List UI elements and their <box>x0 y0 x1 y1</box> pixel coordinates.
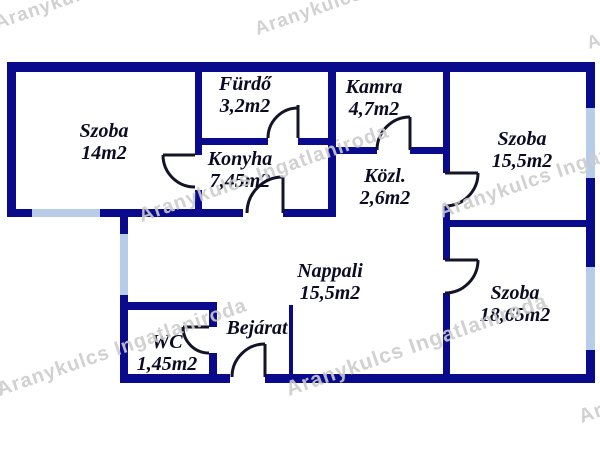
watermark: Aranykulcs Ingatlaniroda <box>283 289 551 401</box>
room-area: 2,6m2 <box>360 187 411 209</box>
door-furdo <box>268 105 298 138</box>
room-area: 4,7m2 <box>346 98 403 120</box>
room-name: Fürdő <box>219 73 271 95</box>
door-arc <box>268 108 298 138</box>
wall-top <box>7 62 593 72</box>
watermark: Aranykulcs Ingatlaniroda <box>0 0 237 35</box>
room-name: Kamra <box>346 76 403 98</box>
window-szoba14-bottom <box>32 209 100 217</box>
room-label-kamra: Kamra 4,7m2 <box>346 76 403 120</box>
window-right-lower <box>586 267 595 350</box>
wall-szoba14-right-a <box>195 62 202 155</box>
window-left-lower <box>120 234 128 295</box>
wall-szoba-divider <box>450 220 595 227</box>
wall-wc-right-b <box>209 353 217 377</box>
door-szoba14 <box>163 155 195 187</box>
door-szoba18 <box>445 260 478 293</box>
door-bejarat <box>232 344 265 377</box>
room-label-furdo: Fürdő 3,2m2 <box>219 73 271 117</box>
room-name: Szoba <box>80 120 129 142</box>
door-arc <box>163 155 195 187</box>
watermark: Aranykulcs Ingatlaniroda <box>136 120 392 227</box>
room-label-nappali: Nappali 15,5m2 <box>297 260 363 304</box>
room-name: Közl. <box>360 165 411 187</box>
watermark: Aranykulcs Ingatlaniroda <box>584 0 600 54</box>
room-name: Nappali <box>297 260 363 282</box>
wall-left-upper <box>7 62 16 217</box>
door-arc <box>232 344 265 377</box>
room-label-szoba-14: Szoba 14m2 <box>80 120 129 164</box>
watermark: Aranykulcs Ingatlaniroda <box>252 0 497 41</box>
room-area: 1,45m2 <box>137 353 198 375</box>
room-area: 14m2 <box>80 142 129 164</box>
wall-furdo-bottom-a <box>202 138 268 145</box>
wall-entry-partition <box>289 305 293 378</box>
wall-inner-right-a <box>443 62 450 173</box>
wall-kamra-bottom-b <box>410 147 443 154</box>
floor-plan: Szoba 14m2 Fürdő 3,2m2 Kamra 4,7m2 Szoba… <box>0 0 600 450</box>
room-area: 15,5m2 <box>297 282 363 304</box>
door-arc <box>445 260 478 293</box>
room-area: 3,2m2 <box>219 95 271 117</box>
room-label-kozl: Közl. 2,6m2 <box>360 165 411 209</box>
room-name: Szoba <box>492 128 553 150</box>
